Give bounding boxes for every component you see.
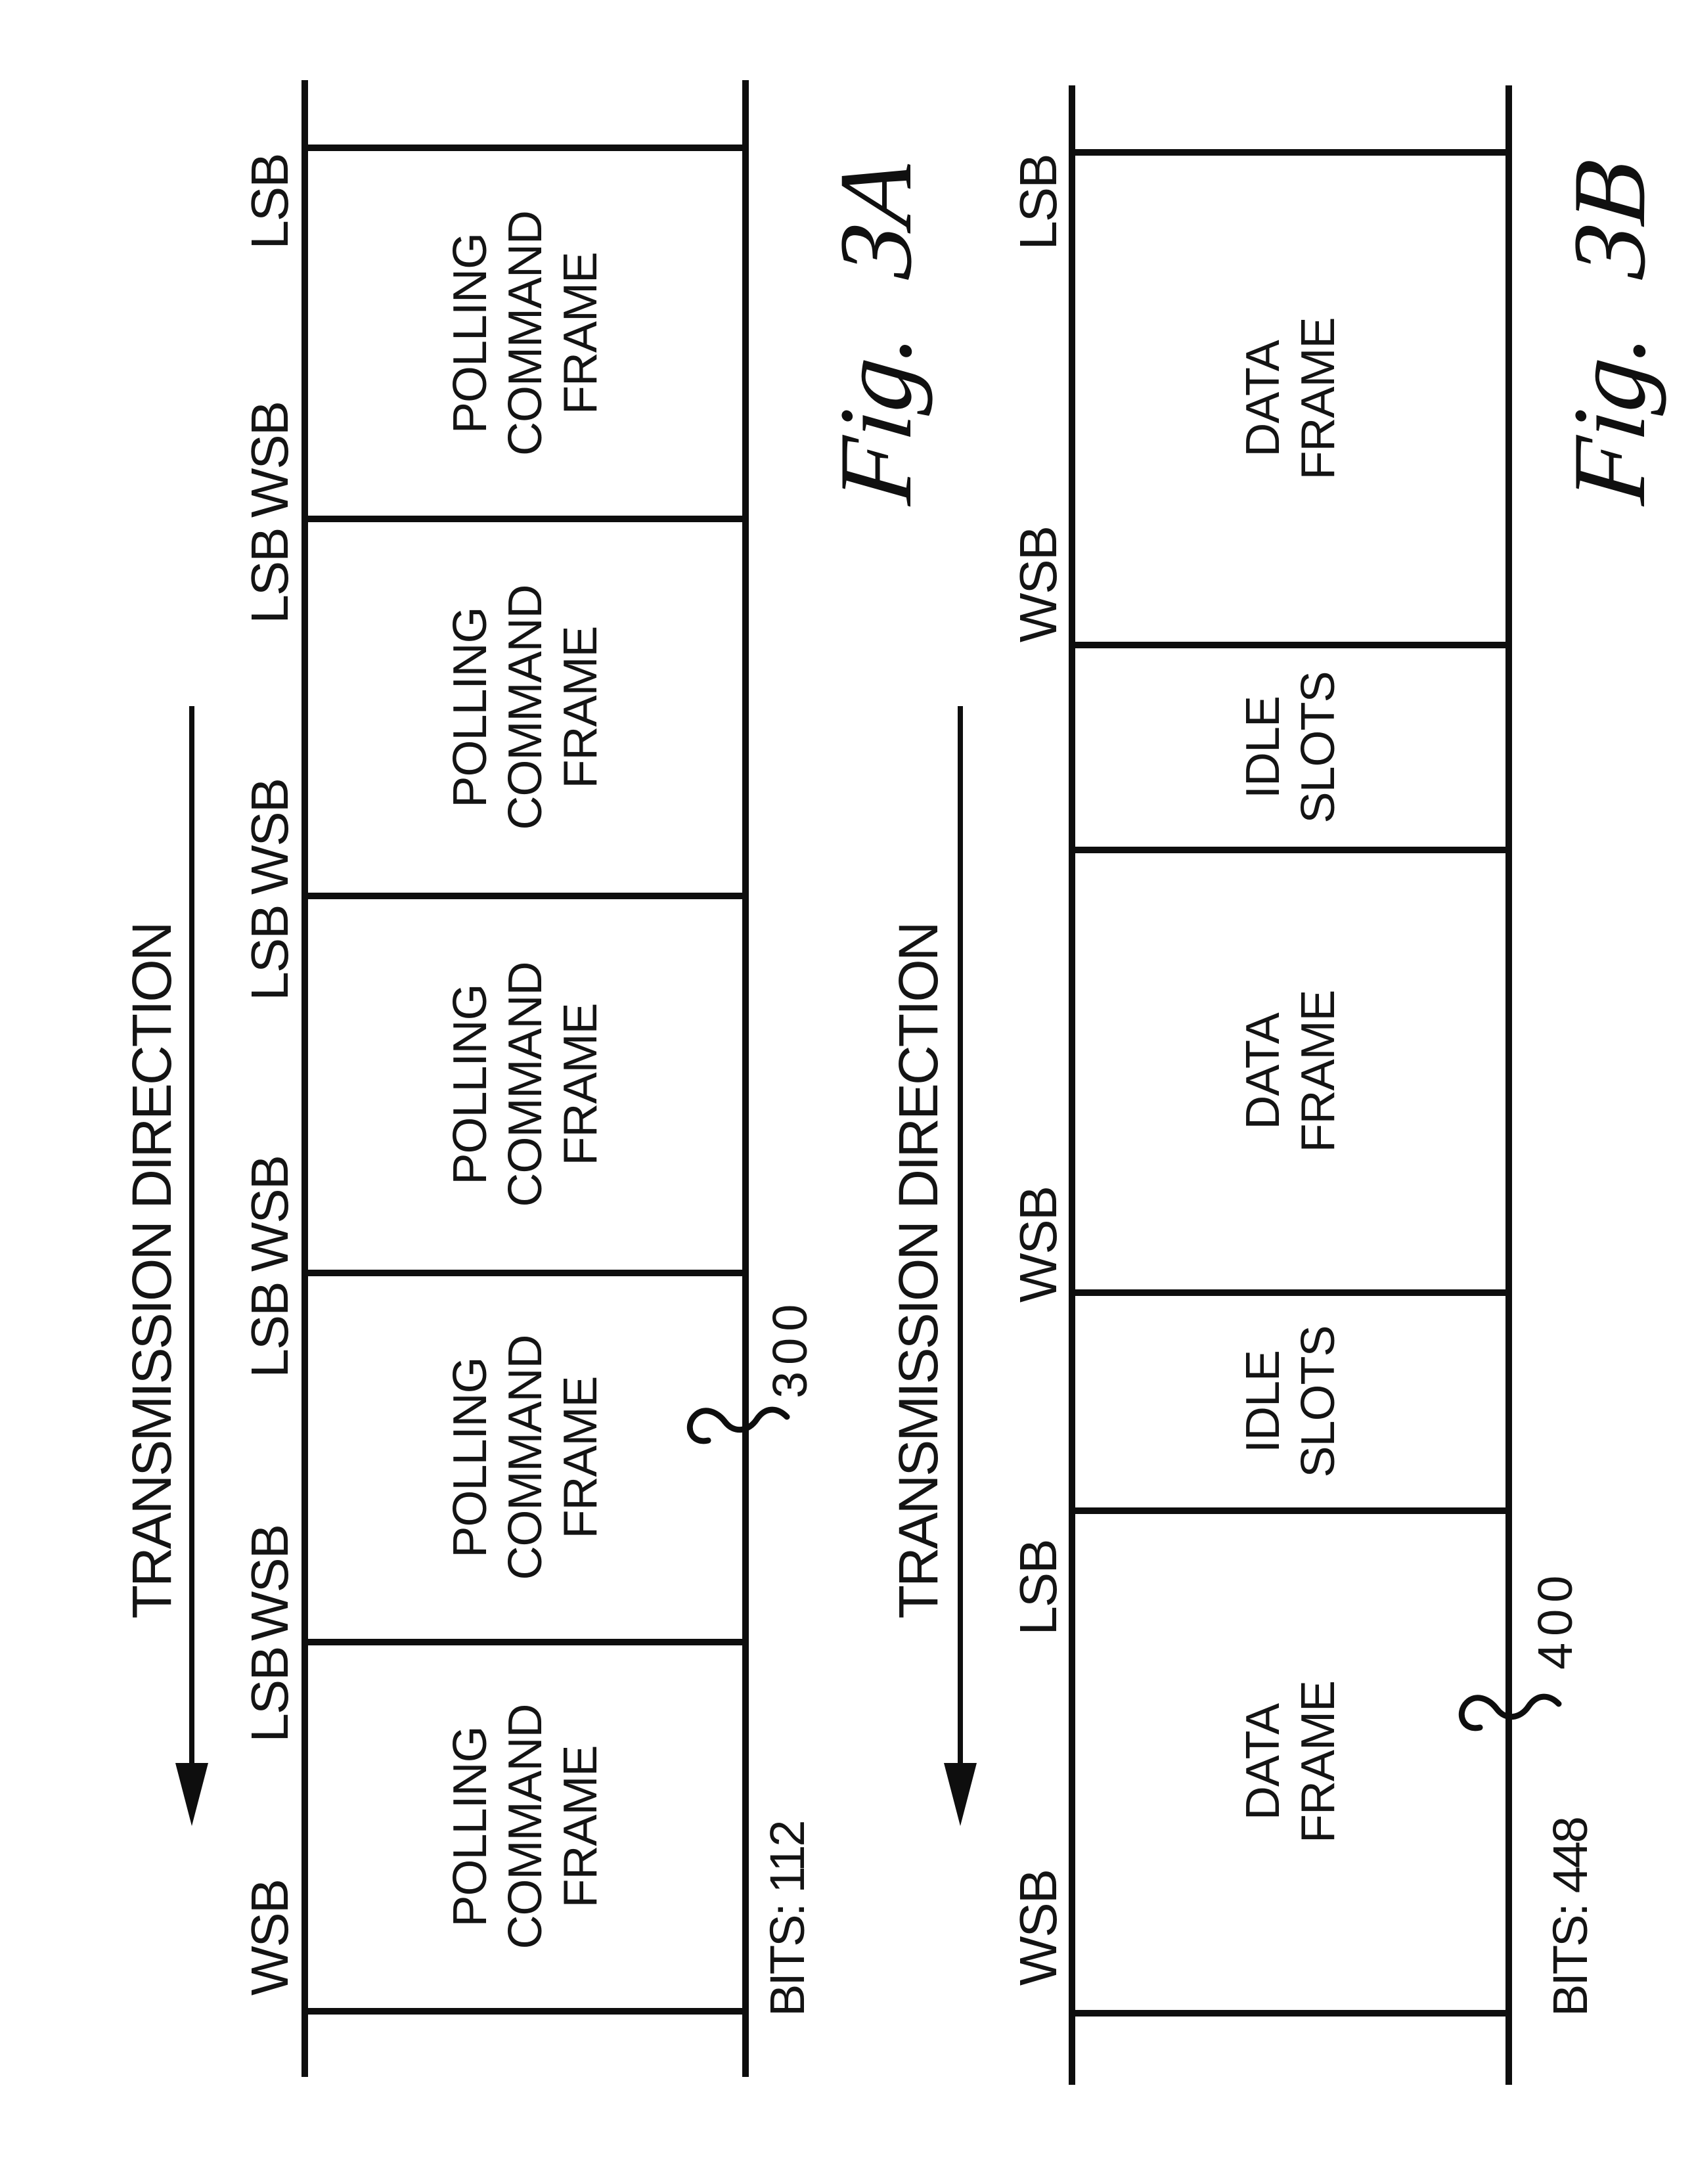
frame-label-line: FRAME bbox=[553, 1273, 608, 1642]
data-frame-box: DATA FRAME bbox=[1072, 1511, 1509, 2013]
frame-label-line: FRAME bbox=[1291, 152, 1346, 645]
frame-label-line: POLLING bbox=[443, 148, 498, 519]
transmission-arrow-shaft-3a bbox=[189, 706, 194, 1766]
frame-label-line: SLOTS bbox=[1291, 645, 1346, 850]
frame-label-line: POLLING bbox=[443, 896, 498, 1273]
bit-label-lsb: LSB bbox=[240, 129, 300, 274]
data-frame-box: DATA FRAME bbox=[1072, 152, 1509, 645]
frame-label-line: POLLING bbox=[443, 1273, 498, 1642]
reference-numeral-300: 300 bbox=[762, 1298, 818, 1398]
polling-command-frame-box: POLLING COMMAND FRAME bbox=[305, 148, 746, 519]
frame-label-line: FRAME bbox=[553, 519, 608, 896]
polling-command-frame-box: POLLING COMMAND FRAME bbox=[305, 1642, 746, 2011]
data-frame-box: DATA FRAME bbox=[1072, 850, 1509, 1293]
idle-slots-box: IDLE SLOTS bbox=[1072, 645, 1509, 850]
polling-command-frame-box: POLLING COMMAND FRAME bbox=[305, 1273, 746, 1642]
bits-count-3a: BITS: 112 bbox=[759, 1821, 815, 2017]
frame-label-line: FRAME bbox=[553, 896, 608, 1273]
frame-label-line: COMMAND bbox=[498, 1273, 553, 1642]
frame-label-line: COMMAND bbox=[498, 896, 553, 1273]
bit-label-wsb: WSB bbox=[1008, 512, 1069, 657]
bit-label-wsb: WSB bbox=[1008, 1172, 1069, 1317]
frame-label-line: IDLE bbox=[1236, 645, 1291, 850]
frame-label-line: COMMAND bbox=[498, 519, 553, 896]
left-arrowhead-icon-3b bbox=[944, 1763, 977, 1826]
frame-label-line: FRAME bbox=[1291, 850, 1346, 1293]
bit-label-wsb: WSB bbox=[240, 388, 300, 532]
frame-label-line: DATA bbox=[1236, 152, 1291, 645]
bit-label-wsb: WSB bbox=[240, 765, 300, 909]
bit-label-lsb: LSB bbox=[1008, 130, 1069, 275]
bit-label-wsb: WSB bbox=[240, 1511, 300, 1655]
figure-title-3b: Fig. 3B bbox=[1550, 154, 1670, 508]
figure-title-3a: Fig. 3A bbox=[816, 154, 936, 508]
bit-label-lsb: LSB bbox=[1008, 1515, 1069, 1660]
idle-slots-box: IDLE SLOTS bbox=[1072, 1293, 1509, 1511]
transmission-arrow-shaft-3b bbox=[958, 706, 963, 1766]
frame-label-line: POLLING bbox=[443, 519, 498, 896]
bit-label-wsb: WSB bbox=[240, 1142, 300, 1286]
frame-label-line: FRAME bbox=[553, 148, 608, 519]
frame-label-line: IDLE bbox=[1236, 1293, 1291, 1511]
transmission-direction-label-3a: TRANSMISSION DIRECTION bbox=[120, 924, 184, 1619]
frame-label-line: DATA bbox=[1236, 1511, 1291, 2013]
frame-label-line: DATA bbox=[1236, 850, 1291, 1293]
bit-label-wsb: WSB bbox=[1008, 1856, 1069, 2000]
polling-command-frame-box: POLLING COMMAND FRAME bbox=[305, 519, 746, 896]
bit-label-wsb: WSB bbox=[240, 1865, 300, 2010]
frame-label-line: SLOTS bbox=[1291, 1293, 1346, 1511]
polling-command-frame-box: POLLING COMMAND FRAME bbox=[305, 896, 746, 1273]
transmission-direction-label-3b: TRANSMISSION DIRECTION bbox=[887, 924, 950, 1619]
frame-label-line: FRAME bbox=[553, 1642, 608, 2011]
left-arrowhead-icon-3a bbox=[175, 1763, 208, 1826]
frame-label-line: COMMAND bbox=[498, 1642, 553, 2011]
reference-numeral-400: 400 bbox=[1527, 1569, 1583, 1670]
frame-label-line: FRAME bbox=[1291, 1511, 1346, 2013]
rotated-landscape-stage: TRANSMISSION DIRECTION POLLING COMMAND F… bbox=[0, 0, 1694, 2184]
frame-label-line: POLLING bbox=[443, 1642, 498, 2011]
patent-drawing-page: { "page": { "background": "#ffffff", "in… bbox=[0, 0, 1694, 2184]
bits-count-3b: BITS: 448 bbox=[1542, 1818, 1598, 2017]
frame-label-line: COMMAND bbox=[498, 148, 553, 519]
